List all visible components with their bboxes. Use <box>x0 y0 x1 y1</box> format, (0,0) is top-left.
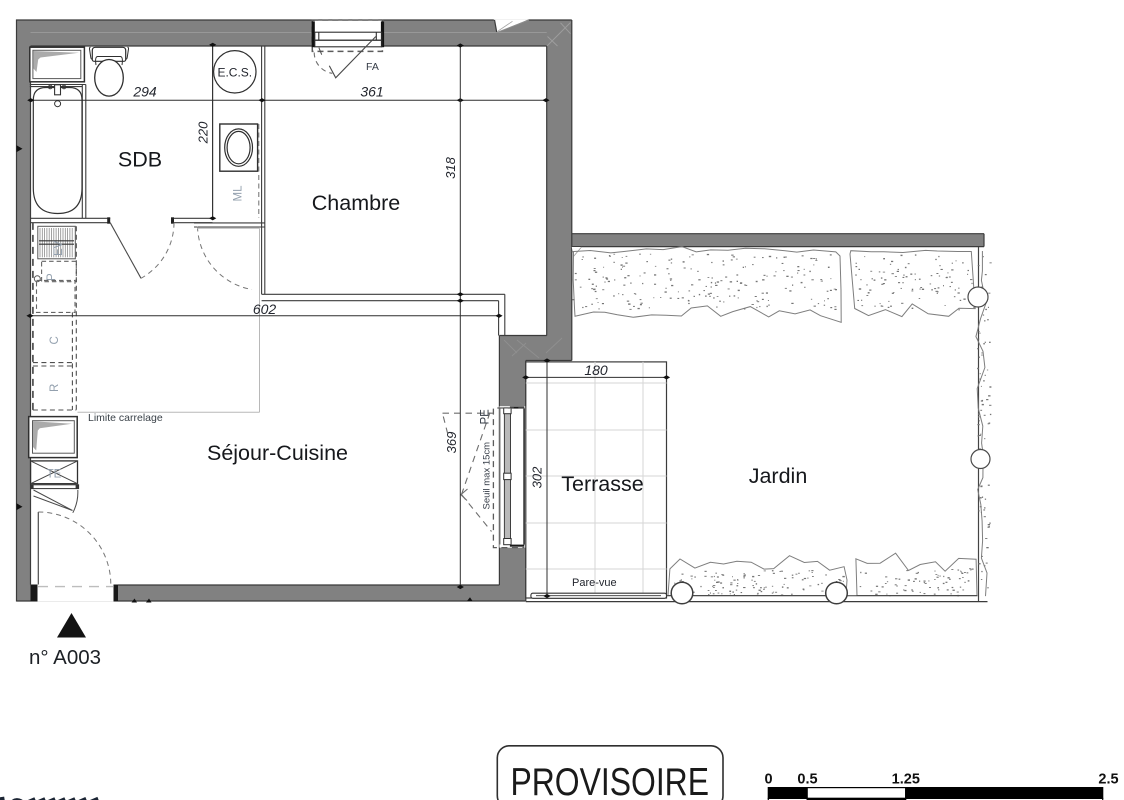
svg-text:302: 302 <box>530 466 545 488</box>
svg-text:R: R <box>49 384 61 392</box>
svg-text:1.25: 1.25 <box>892 772 920 788</box>
svg-text:FA: FA <box>366 61 379 73</box>
svg-text:n° A003: n° A003 <box>29 646 101 669</box>
svg-text:ML: ML <box>233 185 245 202</box>
svg-text:Pare-vue: Pare-vue <box>572 577 617 589</box>
svg-text:EV: EV <box>53 240 65 256</box>
svg-text:P: P <box>46 273 58 281</box>
svg-text:220: 220 <box>196 121 211 144</box>
svg-text:C: C <box>49 336 61 344</box>
svg-text:369: 369 <box>444 432 459 454</box>
svg-text:2.5: 2.5 <box>1098 772 1118 788</box>
svg-text:Séjour-Cuisine: Séjour-Cuisine <box>207 441 348 465</box>
svg-text:PE: PE <box>480 409 492 425</box>
svg-text:PROVISOIRE: PROVISOIRE <box>511 761 710 800</box>
svg-text:318: 318 <box>443 156 458 178</box>
svg-text:Terrasse: Terrasse <box>561 472 643 496</box>
svg-text:E.C.S.: E.C.S. <box>217 65 252 79</box>
svg-text:SDB: SDB <box>118 148 162 172</box>
svg-text:TE: TE <box>47 469 62 481</box>
svg-text:Seuil max 15cm: Seuil max 15cm <box>482 442 493 510</box>
svg-text:361: 361 <box>360 84 383 100</box>
svg-text:Jardin: Jardin <box>749 464 808 488</box>
svg-text:180: 180 <box>584 362 608 378</box>
svg-text:602: 602 <box>253 301 277 317</box>
svg-text:Limite carrelage: Limite carrelage <box>88 412 163 424</box>
svg-text:0: 0 <box>764 772 772 788</box>
svg-text:294: 294 <box>132 84 157 100</box>
svg-text:0.5: 0.5 <box>797 772 817 788</box>
svg-text:Chambre: Chambre <box>312 191 400 215</box>
